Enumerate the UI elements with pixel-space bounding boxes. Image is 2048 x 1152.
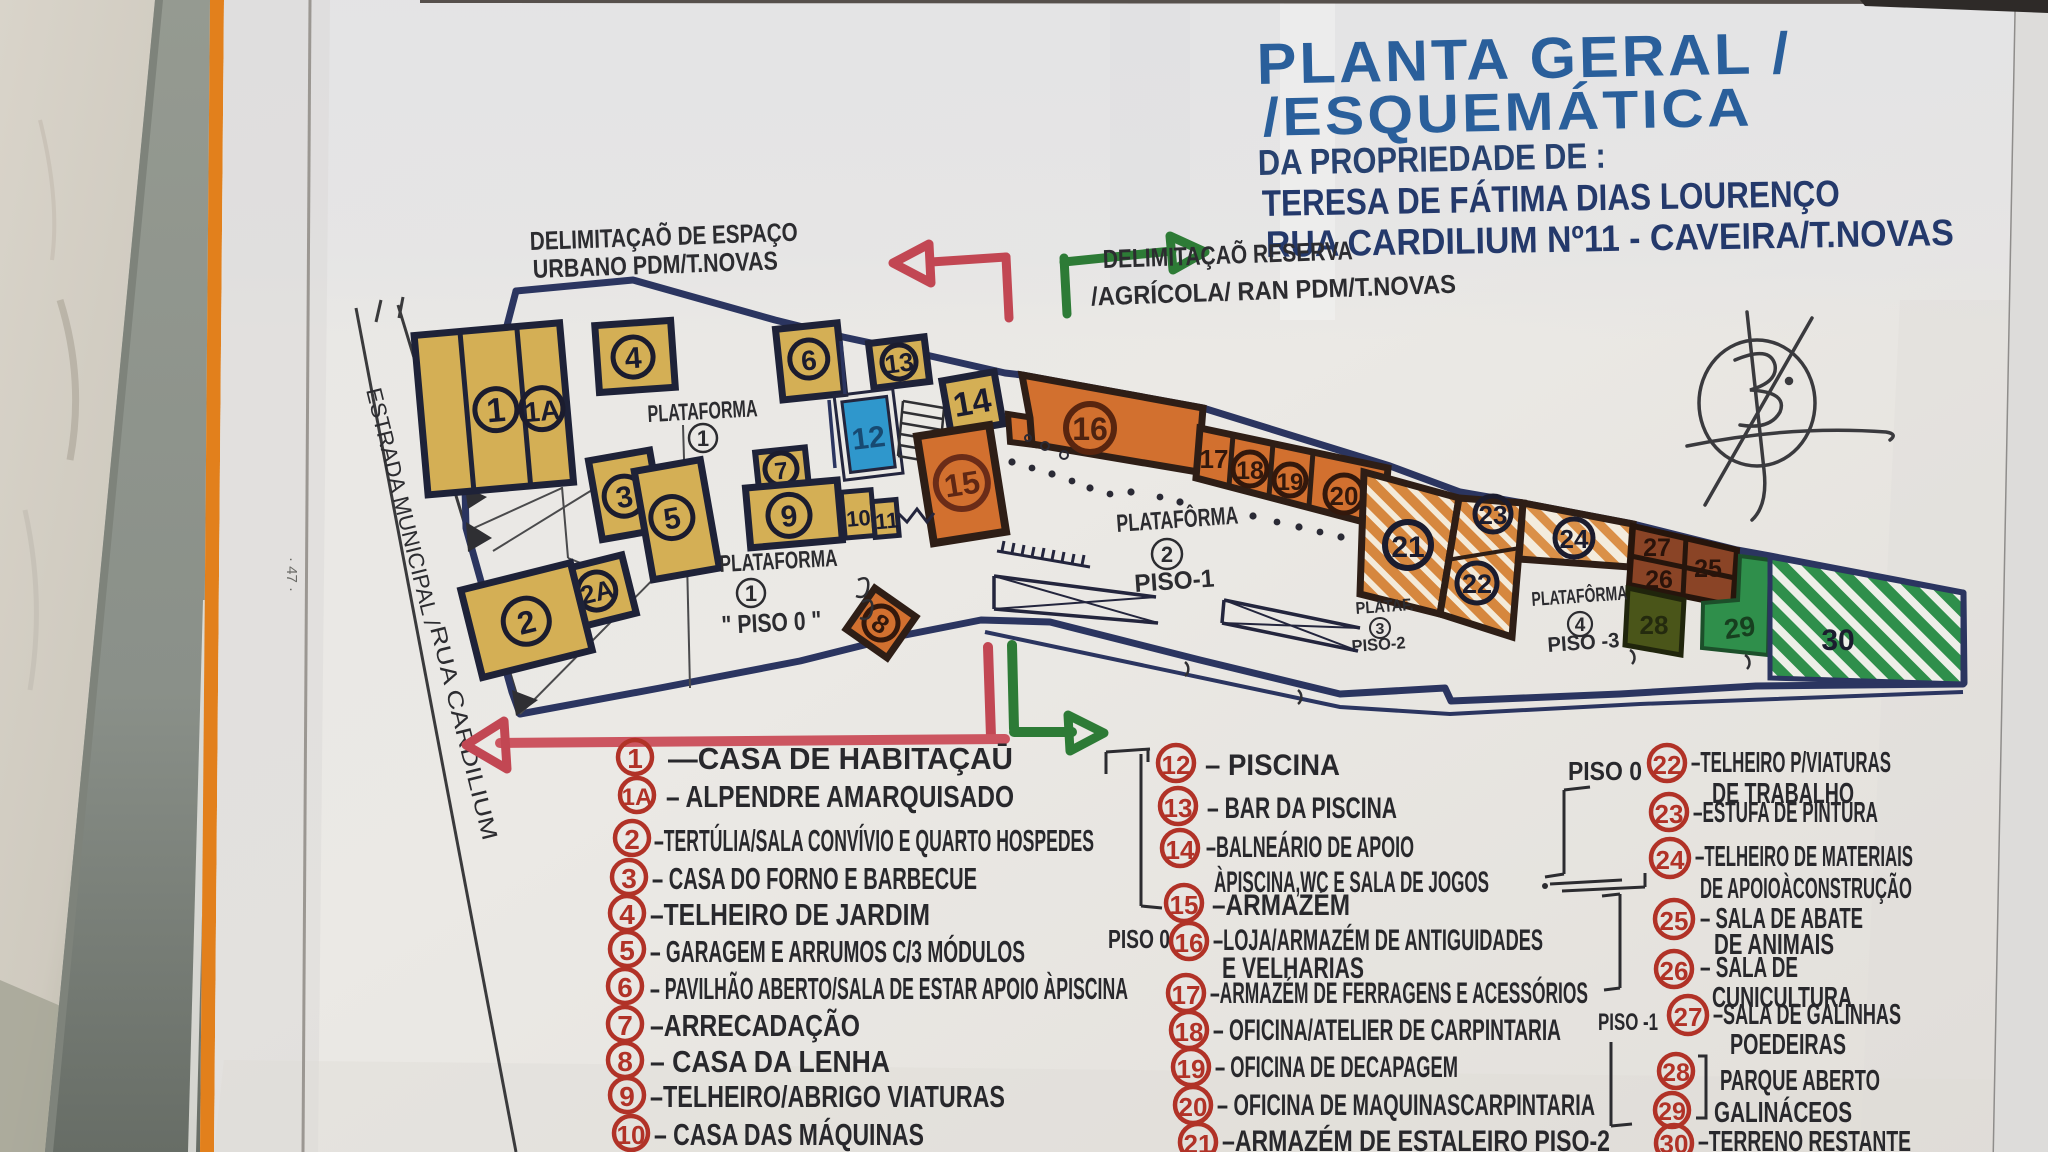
- svg-text:8: 8: [617, 1046, 633, 1077]
- svg-text:–TERTÚLIA/SALA CONVÍVIO E QUAR: –TERTÚLIA/SALA CONVÍVIO E QUARTO HOSPEDE…: [654, 822, 1094, 858]
- svg-text:25: 25: [1694, 555, 1722, 583]
- svg-text:– GARAGEM E ARRUMOS C/3 MÓDULO: – GARAGEM E ARRUMOS C/3 MÓDULOS: [650, 933, 1025, 969]
- svg-text:– CASA DO FORNO E BARBECUE: – CASA DO FORNO E BARBECUE: [652, 861, 977, 896]
- svg-text:23: 23: [1479, 500, 1508, 530]
- svg-text:–TERRENO RESTANTE: –TERRENO RESTANTE: [1698, 1126, 1911, 1152]
- svg-text:28: 28: [1640, 610, 1669, 640]
- svg-text:–BALNEÁRIO DE APOIO: –BALNEÁRIO DE APOIO: [1206, 830, 1414, 864]
- svg-text:PLATAF.: PLATAF.: [1355, 595, 1414, 618]
- svg-text:23: 23: [1655, 799, 1684, 829]
- svg-text:1: 1: [697, 426, 709, 451]
- svg-text:– SALA DE: – SALA DE: [1700, 952, 1798, 984]
- svg-text:18: 18: [1236, 457, 1264, 485]
- svg-text:12: 12: [850, 420, 887, 457]
- svg-text:2: 2: [1161, 542, 1173, 567]
- svg-text:– OFICINA/ATELIER DE CARPINTAR: – OFICINA/ATELIER DE CARPINTARIA: [1213, 1014, 1561, 1047]
- svg-text:–ESTUFA DE PINTURA: –ESTUFA DE PINTURA: [1693, 797, 1878, 829]
- svg-text:PISO 0: PISO 0: [1108, 924, 1170, 954]
- svg-text:–TELHEIRO P/VIATURAS: –TELHEIRO P/VIATURAS: [1691, 747, 1891, 779]
- svg-text:24: 24: [1560, 524, 1589, 554]
- svg-text:POEDEIRAS: POEDEIRAS: [1730, 1029, 1846, 1061]
- svg-text:10: 10: [617, 1120, 646, 1150]
- svg-text:1A: 1A: [523, 394, 561, 428]
- svg-text:–TELHEIRO DE MATERIAIS: –TELHEIRO DE MATERIAIS: [1695, 841, 1913, 873]
- svg-text:– BAR DA PISCINA: – BAR DA PISCINA: [1207, 792, 1397, 825]
- svg-text:28: 28: [1662, 1059, 1690, 1087]
- svg-text:22: 22: [1462, 569, 1492, 599]
- svg-text:–ARMAZÉM: –ARMAZÉM: [1212, 888, 1350, 922]
- svg-text:7: 7: [617, 1010, 633, 1041]
- svg-text:15: 15: [1170, 890, 1199, 920]
- svg-text:21: 21: [1391, 531, 1424, 564]
- svg-text:13: 13: [883, 346, 915, 379]
- svg-text:PISO-1: PISO-1: [1133, 564, 1215, 598]
- svg-text:DE APOIOÀCONSTRUÇÃO: DE APOIOÀCONSTRUÇÃO: [1700, 871, 1912, 905]
- svg-text:26: 26: [1660, 956, 1689, 986]
- svg-text:13: 13: [1164, 793, 1193, 823]
- svg-text:– CASA DA LENHA: – CASA DA LENHA: [650, 1044, 890, 1079]
- svg-text:21: 21: [1184, 1129, 1213, 1152]
- svg-text:24: 24: [1656, 845, 1685, 875]
- svg-text:17: 17: [1172, 980, 1201, 1010]
- svg-text:–SALA DE GALINHAS: –SALA DE GALINHAS: [1713, 999, 1901, 1031]
- svg-text:15: 15: [942, 463, 983, 504]
- svg-text:· 47 ·: · 47 ·: [283, 557, 300, 592]
- svg-text:18: 18: [1175, 1017, 1204, 1047]
- svg-text:16: 16: [1072, 411, 1108, 447]
- svg-text:1: 1: [627, 743, 643, 774]
- svg-text:27: 27: [1674, 1002, 1703, 1032]
- svg-text:– OFICINA DE MAQUINASCARPINTAR: – OFICINA DE MAQUINASCARPINTARIA: [1217, 1089, 1595, 1122]
- svg-text:26: 26: [1645, 566, 1673, 594]
- svg-text:20: 20: [1179, 1092, 1208, 1122]
- svg-text:1A: 1A: [622, 784, 653, 811]
- svg-text:–ARRECADAÇÃO: –ARRECADAÇÃO: [650, 1008, 860, 1043]
- svg-text:4: 4: [619, 899, 635, 930]
- svg-text:29: 29: [1658, 1098, 1686, 1126]
- svg-text:16: 16: [1175, 928, 1204, 958]
- svg-text:– OFICINA DE DECAPAGEM: – OFICINA DE DECAPAGEM: [1215, 1051, 1458, 1084]
- svg-text:1: 1: [485, 391, 507, 431]
- svg-text:—CASA DE HABITAÇAŪ: —CASA DE HABITAÇAŪ: [668, 741, 1013, 776]
- svg-text:6: 6: [800, 344, 819, 376]
- svg-text:10: 10: [845, 505, 872, 532]
- svg-text:– ALPENDRE AMARQUISADO: – ALPENDRE AMARQUISADO: [666, 779, 1014, 814]
- svg-text:29: 29: [1722, 610, 1757, 645]
- svg-text:30: 30: [1821, 624, 1854, 657]
- svg-text:GALINÁCEOS: GALINÁCEOS: [1714, 1095, 1852, 1129]
- svg-text:30: 30: [1660, 1129, 1689, 1152]
- svg-text:PISO 0: PISO 0: [1568, 756, 1642, 786]
- svg-text:PARQUE ABERTO: PARQUE ABERTO: [1720, 1065, 1880, 1097]
- svg-text:12: 12: [1162, 750, 1191, 780]
- svg-text:–TELHEIRO DE JARDIM: –TELHEIRO DE JARDIM: [650, 897, 930, 932]
- svg-text:–TELHEIRO/ABRIGO VIATURAS: –TELHEIRO/ABRIGO VIATURAS: [650, 1079, 1005, 1114]
- svg-text:–ARMAZÉM DE ESTALEIRO PISO-2: –ARMAZÉM DE ESTALEIRO PISO-2: [1222, 1124, 1610, 1152]
- svg-text:– CASA DAS MÁQUINAS: – CASA DAS MÁQUINAS: [654, 1117, 924, 1152]
- svg-text:1: 1: [745, 581, 757, 606]
- svg-text:22: 22: [1653, 750, 1682, 780]
- svg-text:9: 9: [619, 1081, 635, 1112]
- svg-text:19: 19: [1177, 1054, 1206, 1084]
- svg-text:" PISO 0 ": " PISO 0 ": [721, 605, 822, 640]
- svg-text:3: 3: [621, 863, 637, 894]
- svg-text:11: 11: [874, 507, 899, 534]
- svg-text:5: 5: [619, 935, 635, 966]
- svg-text:20: 20: [1330, 481, 1359, 511]
- svg-text:14: 14: [950, 381, 994, 425]
- svg-text:–ARMAZÉM DE FERRAGENS E ACESSÓ: –ARMAZÉM DE FERRAGENS E ACESSÓRIOS: [1210, 976, 1588, 1010]
- svg-text:– PISCINA: – PISCINA: [1205, 749, 1340, 782]
- svg-text:27: 27: [1643, 534, 1671, 562]
- svg-text:14: 14: [1166, 835, 1195, 865]
- svg-text:2: 2: [624, 824, 640, 855]
- svg-text:25: 25: [1660, 906, 1689, 936]
- svg-text:17: 17: [1200, 444, 1229, 474]
- svg-text:DA PROPRIEDADE DE :: DA PROPRIEDADE DE :: [1257, 135, 1606, 183]
- svg-text:– PAVILHÃO ABERTO/SALA DE ESTA: – PAVILHÃO ABERTO/SALA DE ESTAR APOIO ÀP…: [650, 971, 1128, 1006]
- svg-text:9: 9: [779, 500, 799, 534]
- svg-text:19: 19: [1277, 469, 1304, 496]
- svg-text:PISO -1: PISO -1: [1598, 1009, 1658, 1036]
- svg-text:4: 4: [624, 342, 643, 376]
- svg-text:6: 6: [617, 972, 633, 1003]
- svg-text:PISO-2: PISO-2: [1351, 633, 1406, 656]
